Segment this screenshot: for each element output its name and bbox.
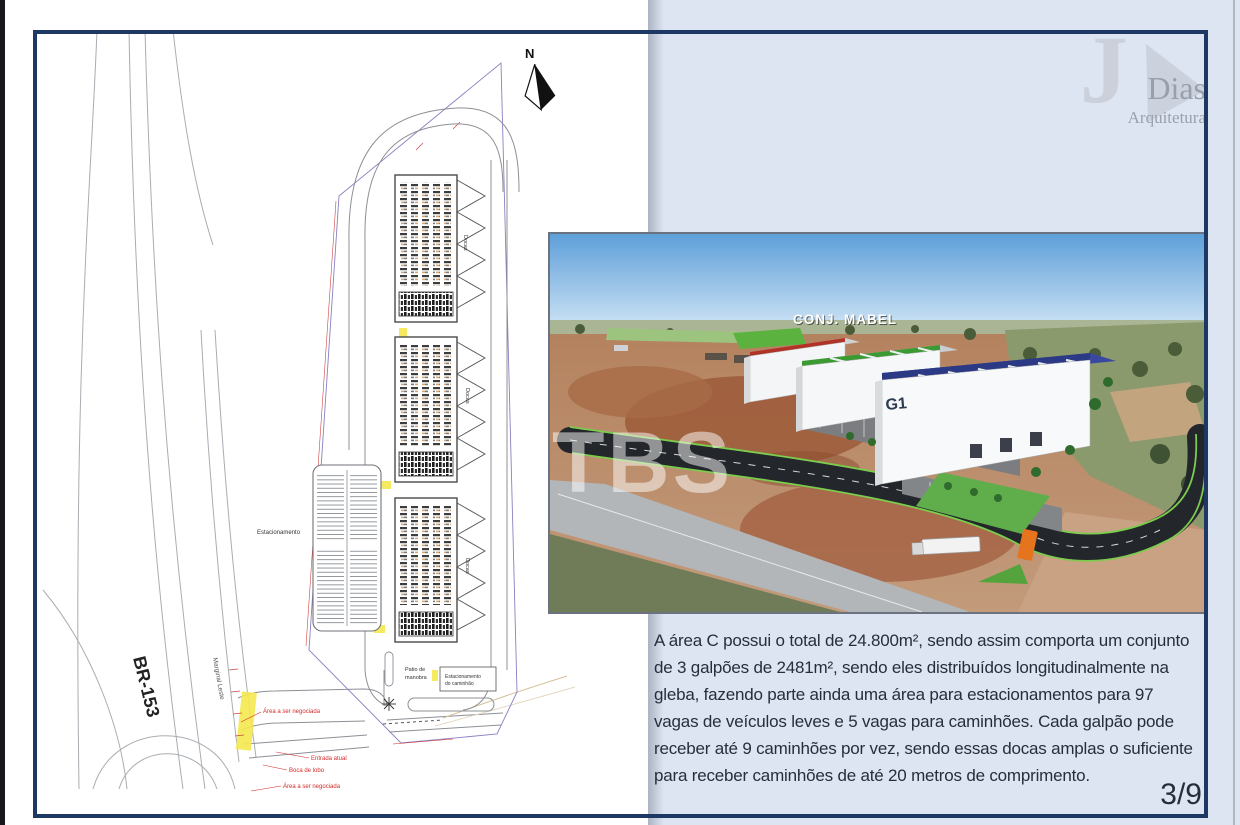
yard-label-line1: Patio de [405,667,425,673]
aerial-render-image: G1 CONJ. MABEL CONJ. MABEL TBS [548,232,1207,614]
screen-right-line [1233,0,1235,825]
parking-lot [313,465,381,631]
logo-name: Dias [1147,70,1206,107]
estate-label: CONJ. MABEL [793,312,897,327]
area-description-text: A área C possui o total de 24.800m², sen… [654,627,1206,789]
company-logo: J Dias Arquitetura [1058,28,1208,138]
annotation-area-negotiated-top: Área a ser negociada [263,708,321,715]
warehouse-buildings [395,175,485,642]
truck-parking-label-line1: Estacionamento [445,674,481,680]
docks-label-1: Docas [462,235,468,251]
page-number: 3/9 [1130,778,1202,812]
annotation-drain: Boca de lobo [289,768,325,774]
red-leader-lines [241,712,453,791]
annotation-area-negotiated-bottom: Área a ser negociada [283,783,341,790]
screen-left-bar [0,0,5,825]
docks-label-3: Docas [464,558,470,574]
yard-label-line2: manobra [405,675,428,681]
dashed-survey-line [383,720,443,724]
render-building-label: G1 [885,395,908,414]
logo-j-mark: J [1080,14,1128,125]
tbs-watermark: TBS [552,415,733,511]
tree-symbol [382,697,396,711]
north-arrow-icon [521,62,557,112]
frontage-road-label: Marginal Leste [211,657,225,701]
annotation-entrance: Entrada atual [311,756,347,762]
truck-yard [385,652,496,711]
docks-label-2: Docas [464,388,470,404]
parking-label: Estacionamento [257,530,301,536]
highway-label: BR-153 [129,654,163,719]
faint-curve-2 [435,687,575,726]
truck-parking-label-line2: do caminhão [445,681,474,687]
north-label: N [525,46,534,61]
presentation-slide: { "page": { "number_label": "3/9" }, "lo… [0,0,1240,825]
logo-subtitle: Arquitetura [1128,108,1206,128]
red-annotations: Área a ser negociada Entrada atual Boca … [263,708,347,790]
